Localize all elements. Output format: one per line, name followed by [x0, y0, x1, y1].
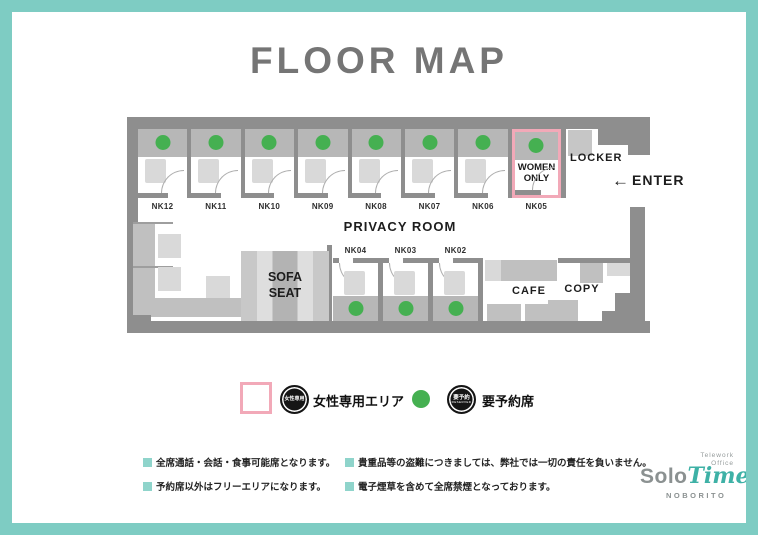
- sofa-seat-area: SOFA SEAT: [241, 251, 329, 321]
- floor-map: SOFA SEAT LOCKER CAFE COPY PRIVACY ROOM …: [127, 115, 655, 333]
- reserved-seat-indicator: [262, 135, 277, 150]
- note-item: 予約席以外はフリーエリアになります。: [143, 479, 326, 493]
- note-bullet-icon: [143, 458, 152, 467]
- door-wall: [458, 193, 488, 198]
- women-badge-text: 女性専用: [284, 397, 304, 403]
- wall-top-right-block: [598, 129, 650, 145]
- booth-label: NK06: [458, 202, 507, 211]
- logo-wordmark: SoloTime: [640, 463, 750, 489]
- seat: [394, 271, 415, 295]
- sofa-seat-label: SOFA SEAT: [263, 270, 307, 301]
- open-desk-chair: [158, 234, 181, 258]
- booth-NK04: [333, 258, 383, 321]
- legend-women-badge: 女性専用: [280, 385, 309, 414]
- cafe-counter: [487, 304, 521, 321]
- booth-NK07: [405, 129, 458, 198]
- reserved-seat-indicator: [209, 135, 224, 150]
- door-wall: [191, 193, 221, 198]
- cafe-counter: [501, 260, 557, 281]
- open-desk-chair: [206, 276, 230, 298]
- booth-NK09: [298, 129, 351, 198]
- logo-tagline-line1: Telework: [700, 452, 734, 460]
- booth-NK06: [458, 129, 511, 198]
- cafe-block: [485, 260, 501, 281]
- desk-divider-line: [133, 222, 173, 224]
- booth-label: NK03: [383, 246, 428, 255]
- seat: [344, 271, 365, 295]
- legend-reserved-badge: 要予約 RESERVED: [447, 385, 476, 414]
- seat: [465, 159, 486, 183]
- enter-text: ENTER: [632, 172, 684, 188]
- note-bullet-icon: [345, 458, 354, 467]
- seat: [252, 159, 273, 183]
- note-item: 貴重品等の盗難につきましては、弊社では一切の責任を負いません。: [345, 455, 652, 469]
- note-bullet-icon: [143, 482, 152, 491]
- legend-women-square: [240, 382, 272, 414]
- logo-solo: Solo: [640, 465, 688, 488]
- privacy-room-label: PRIVACY ROOM: [290, 219, 510, 234]
- wall-step-a: [615, 293, 630, 321]
- booth-label: NK10: [245, 202, 294, 211]
- enter-arrow-icon: ←: [612, 171, 629, 190]
- copy-block: [548, 300, 578, 321]
- reserved-seat-indicator: [369, 135, 384, 150]
- booth-label: NK02: [433, 246, 478, 255]
- wall-step-b: [602, 311, 615, 321]
- booth-NK05: WOMEN ONLY: [512, 129, 561, 198]
- seat: [444, 271, 465, 295]
- copy-block: [580, 263, 603, 283]
- copy-label: COPY: [552, 283, 612, 295]
- wall-top: [127, 117, 650, 129]
- booth-NK11: [191, 129, 244, 198]
- note-item: 全席通話・会話・食事可能席となります。: [143, 455, 335, 469]
- seat: [145, 159, 166, 183]
- door-wall: [298, 193, 328, 198]
- open-desk-chair: [158, 267, 181, 291]
- door-wall: [245, 193, 275, 198]
- cafe-label: CAFE: [499, 285, 559, 297]
- note-text: 電子煙草を含めて全席禁煙となっております。: [358, 482, 556, 493]
- copy-block: [607, 263, 630, 276]
- reserved-badge-subtext: RESERVED: [452, 401, 472, 404]
- note-bullet-icon: [345, 482, 354, 491]
- reserved-seat-indicator: [529, 138, 544, 153]
- seat: [198, 159, 219, 183]
- entrance-label: ←ENTER: [612, 171, 684, 191]
- reserved-seat-indicator: [315, 135, 330, 150]
- booth-label: NK12: [138, 202, 187, 211]
- logo-location: NOBORITO: [666, 491, 726, 500]
- booth-NK10: [245, 129, 298, 198]
- door-wall: [138, 193, 168, 198]
- booth-label: NK09: [298, 202, 347, 211]
- seat: [359, 159, 380, 183]
- booth-NK08: [352, 129, 405, 198]
- reserved-seat-indicator: [422, 135, 437, 150]
- booth-NK02: [433, 258, 483, 321]
- door-wall: [405, 193, 435, 198]
- logo-time: Time: [688, 463, 750, 489]
- booth-label: NK04: [333, 246, 378, 255]
- reserved-seat-indicator: [398, 301, 413, 316]
- note-text: 全席通話・会話・食事可能席となります。: [156, 458, 335, 469]
- seat: [305, 159, 326, 183]
- note-item: 電子煙草を含めて全席禁煙となっております。: [345, 479, 556, 493]
- open-desk-horizontal: [151, 298, 241, 317]
- booth-label: NK11: [191, 202, 240, 211]
- reserved-seat-indicator: [476, 135, 491, 150]
- legend-women-label: 女性専用エリア: [313, 391, 404, 410]
- wall-bottom: [127, 321, 650, 333]
- wall-nk05-right: [561, 129, 566, 198]
- door-wall: [352, 193, 382, 198]
- seat: [412, 159, 433, 183]
- reserved-seat-indicator: [155, 135, 170, 150]
- reserved-seat-indicator: [448, 301, 463, 316]
- booth-label: NK08: [352, 202, 401, 211]
- booth-label: NK07: [405, 202, 454, 211]
- booth-NK12: [138, 129, 191, 198]
- note-text: 貴重品等の盗難につきましては、弊社では一切の責任を負いません。: [358, 458, 652, 469]
- booth-NK03: [383, 258, 433, 321]
- wall-right: [630, 207, 645, 333]
- note-text: 予約席以外はフリーエリアになります。: [156, 482, 326, 493]
- legend-reserved-label: 要予約席: [482, 391, 534, 410]
- locker-label: LOCKER: [570, 152, 645, 164]
- legend-reserved-dot: [412, 390, 430, 408]
- booth-label: NK05: [512, 202, 561, 211]
- door-wall: [515, 190, 541, 195]
- page-title: FLOOR MAP: [0, 40, 758, 82]
- reserved-seat-indicator: [348, 301, 363, 316]
- brand-logo: Telework Office SoloTime NOBORITO: [638, 452, 742, 504]
